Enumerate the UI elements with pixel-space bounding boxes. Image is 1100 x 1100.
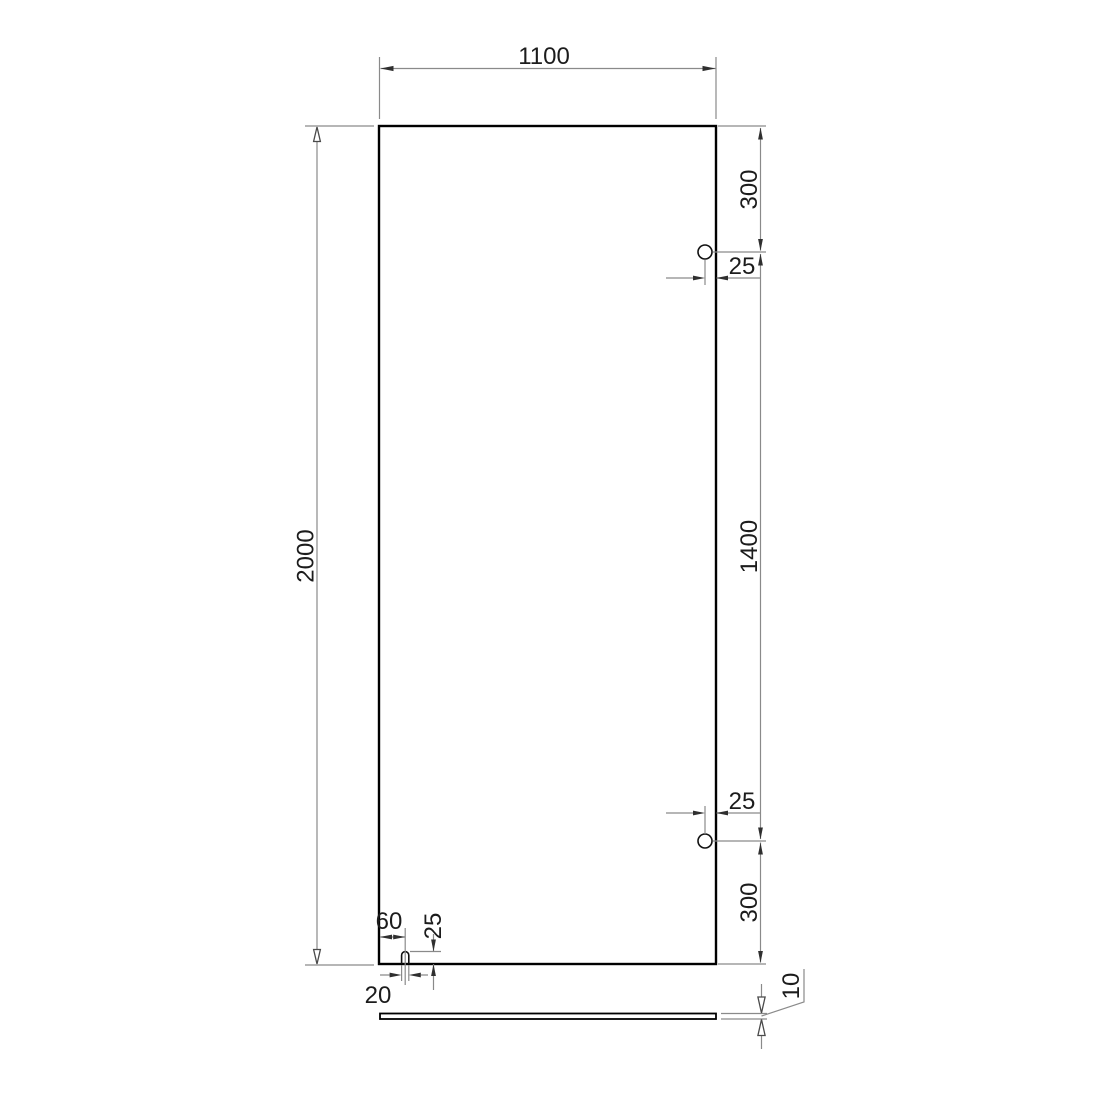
dim-hole-top-offset-label: 300 — [736, 169, 763, 209]
dim-slot-depth-label: 25 — [420, 913, 447, 940]
dim-hole-top-inset: 25 — [666, 253, 760, 285]
dim-hole-top-inset-label: 25 — [729, 253, 756, 280]
arrow-left-icon — [716, 811, 728, 816]
arrow-down-icon — [758, 828, 763, 840]
glass-panel-outline — [379, 126, 716, 964]
dim-slot-width: 20 — [365, 965, 428, 1009]
hole-bottom — [698, 834, 712, 848]
dim-hole-bottom-inset-label: 25 — [729, 788, 756, 815]
dim-panel-width-label: 1100 — [518, 43, 570, 70]
dim-thickness-extensions — [721, 1014, 767, 1020]
arrow-down-icon — [758, 951, 763, 963]
dim-slot-depth: 25 — [410, 913, 447, 990]
dim-right-stack: 300 1400 300 — [713, 126, 767, 964]
hole-top — [698, 245, 712, 259]
arrow-up-icon — [758, 128, 763, 140]
dim-hole-spacing-label: 1400 — [736, 520, 763, 573]
arrow-left-icon — [716, 276, 728, 281]
arrow-left-icon — [409, 973, 421, 978]
dim-thickness-label: 10 — [778, 973, 805, 1000]
dim-panel-height: 2000 — [293, 126, 375, 965]
arrow-down-icon — [431, 940, 436, 952]
arrow-right-icon — [703, 66, 716, 71]
arrow-down-open-icon — [758, 997, 765, 1013]
dim-slot-width-label: 20 — [365, 982, 392, 1009]
arrow-up-icon — [758, 843, 763, 855]
drawing-svg: 1100 2000 300 1400 300 — [0, 0, 1100, 1100]
arrow-right-icon — [393, 935, 405, 940]
arrow-up-open-icon — [314, 127, 321, 142]
side-view: 10 — [380, 969, 805, 1049]
arrow-left-icon — [381, 66, 394, 71]
dim-panel-width: 1100 — [380, 43, 717, 119]
arrow-right-icon — [693, 276, 705, 281]
dim-panel-height-label: 2000 — [293, 529, 320, 582]
side-profile-outline — [380, 1014, 716, 1020]
arrow-down-open-icon — [314, 950, 321, 965]
arrow-left-icon — [380, 935, 392, 940]
dim-hole-bottom-inset: 25 — [666, 788, 760, 834]
arrow-right-icon — [693, 811, 705, 816]
dim-hole-bottom-offset-label: 300 — [736, 882, 763, 922]
front-view — [379, 126, 716, 964]
technical-drawing: 1100 2000 300 1400 300 — [0, 0, 1100, 1100]
arrow-up-icon — [758, 254, 763, 266]
dim-slot-position-label: 60 — [376, 908, 403, 935]
arrow-right-icon — [390, 973, 402, 978]
arrow-down-icon — [758, 239, 763, 251]
arrow-up-icon — [431, 964, 436, 976]
arrow-up-open-icon — [758, 1020, 765, 1036]
